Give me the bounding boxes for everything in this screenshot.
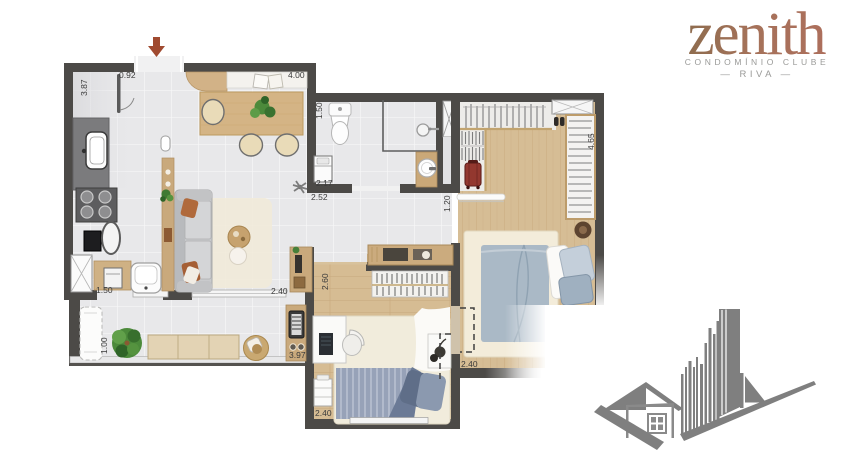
svg-text:2.40: 2.40 [271,286,288,296]
svg-text:CONDOMÍNIO CLUBE: CONDOMÍNIO CLUBE [685,57,830,67]
svg-text:2.17: 2.17 [316,178,333,188]
svg-text:3.87: 3.87 [79,79,89,96]
svg-text:4.65: 4.65 [586,133,596,150]
svg-text:0.92: 0.92 [119,70,136,80]
svg-text:1.50: 1.50 [96,285,113,295]
svg-text:2.52: 2.52 [311,192,328,202]
svg-text:2.40: 2.40 [461,359,478,369]
svg-text:1.50: 1.50 [314,102,324,119]
svg-text:3.97: 3.97 [289,350,306,360]
svg-text:4.00: 4.00 [288,70,305,80]
svg-text:1.00: 1.00 [99,337,109,354]
svg-text:1.20: 1.20 [442,195,452,212]
svg-text:— RIVA —: — RIVA — [720,69,793,80]
svg-text:2.40: 2.40 [315,408,332,418]
svg-text:2.60: 2.60 [320,273,330,290]
